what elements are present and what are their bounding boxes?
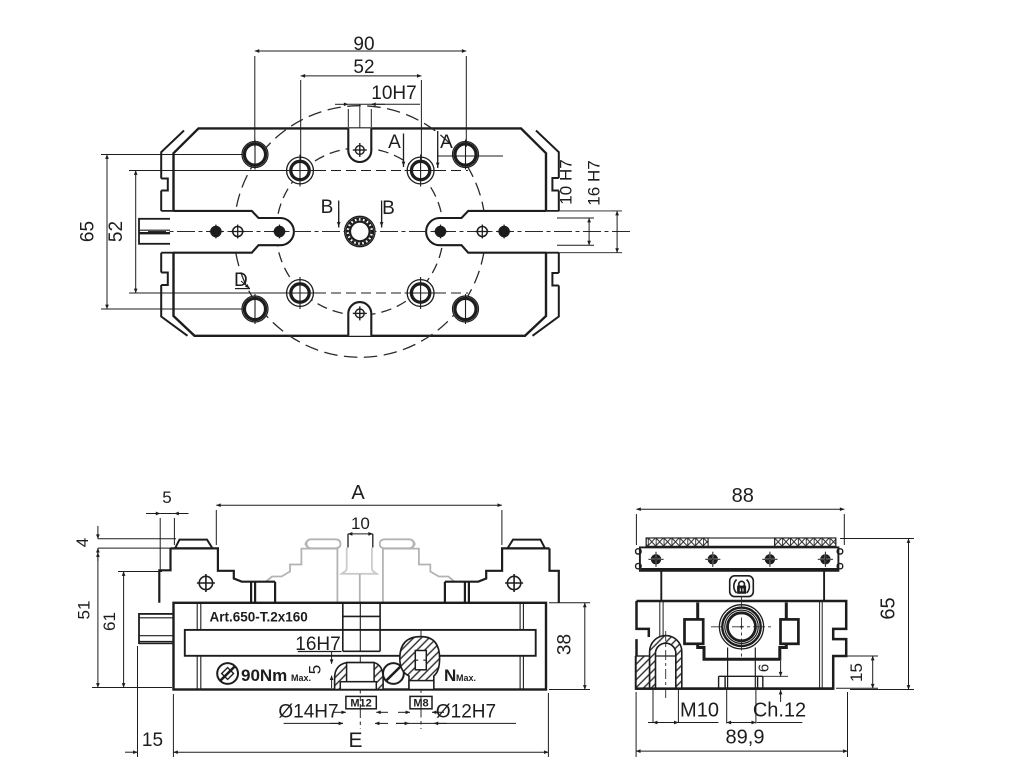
svg-text:A: A bbox=[351, 482, 365, 504]
svg-text:M10: M10 bbox=[680, 700, 719, 722]
svg-text:15: 15 bbox=[847, 663, 866, 682]
svg-text:B: B bbox=[382, 198, 395, 219]
svg-text:N: N bbox=[444, 666, 456, 685]
svg-text:10 H7: 10 H7 bbox=[557, 159, 576, 204]
svg-text:10H7: 10H7 bbox=[371, 83, 416, 104]
svg-text:51: 51 bbox=[75, 601, 94, 620]
svg-text:Art.650-T.2x160: Art.650-T.2x160 bbox=[210, 610, 308, 625]
svg-text:65: 65 bbox=[878, 597, 900, 619]
svg-text:M8: M8 bbox=[413, 698, 428, 710]
svg-text:5: 5 bbox=[162, 488, 171, 507]
svg-text:Ø12H7: Ø12H7 bbox=[436, 702, 496, 723]
svg-text:Ch.12: Ch.12 bbox=[753, 700, 806, 722]
svg-text:61: 61 bbox=[100, 612, 119, 631]
svg-text:M12: M12 bbox=[350, 698, 371, 710]
svg-text:10: 10 bbox=[351, 514, 370, 533]
svg-text:90Nm: 90Nm bbox=[241, 666, 287, 685]
svg-text:4: 4 bbox=[73, 538, 92, 547]
svg-text:52: 52 bbox=[353, 57, 374, 78]
svg-text:B: B bbox=[321, 197, 334, 218]
svg-text:6: 6 bbox=[756, 664, 773, 672]
svg-text:38: 38 bbox=[555, 634, 576, 655]
svg-text:5: 5 bbox=[306, 665, 325, 674]
svg-text:D: D bbox=[234, 270, 248, 291]
svg-text:88: 88 bbox=[732, 485, 754, 507]
svg-text:E: E bbox=[348, 729, 362, 752]
svg-text:90: 90 bbox=[353, 34, 374, 55]
svg-text:16 H7: 16 H7 bbox=[585, 160, 604, 205]
svg-text:65: 65 bbox=[78, 221, 99, 242]
svg-text:52: 52 bbox=[106, 221, 127, 242]
svg-text:Ø14H7: Ø14H7 bbox=[278, 702, 338, 723]
svg-text:15: 15 bbox=[142, 730, 163, 751]
svg-text:A: A bbox=[440, 132, 453, 153]
svg-text:A: A bbox=[388, 132, 401, 153]
svg-text:Max.: Max. bbox=[456, 673, 476, 683]
svg-text:89,9: 89,9 bbox=[726, 727, 765, 749]
